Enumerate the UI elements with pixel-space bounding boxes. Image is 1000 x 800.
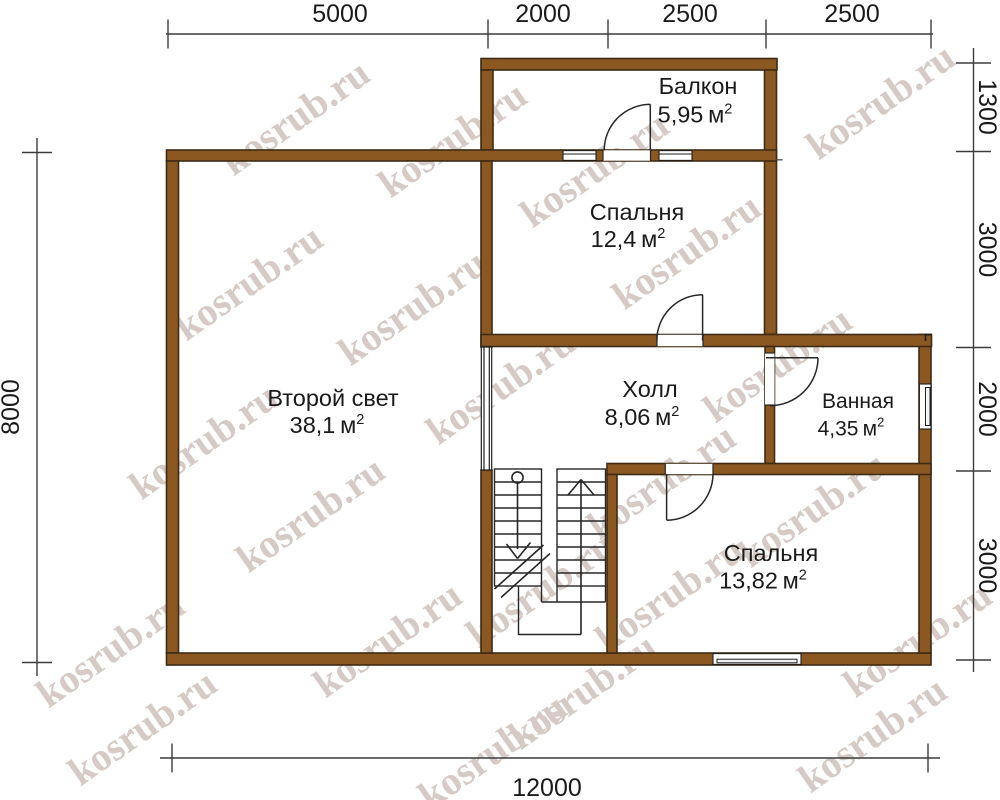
svg-text:38,1 м2: 38,1 м2 bbox=[290, 412, 365, 438]
svg-text:Холл: Холл bbox=[622, 376, 677, 402]
svg-text:2500: 2500 bbox=[824, 0, 880, 28]
svg-text:2500: 2500 bbox=[662, 0, 718, 28]
svg-text:3000: 3000 bbox=[973, 222, 1000, 278]
svg-text:3000: 3000 bbox=[973, 538, 1000, 594]
svg-text:Второй свет: Второй свет bbox=[267, 385, 399, 411]
svg-text:12000: 12000 bbox=[512, 774, 582, 800]
svg-text:8000: 8000 bbox=[0, 379, 25, 435]
svg-text:13,82 м2: 13,82 м2 bbox=[719, 568, 807, 594]
svg-text:Спальня: Спальня bbox=[724, 540, 818, 566]
svg-text:2000: 2000 bbox=[515, 0, 571, 28]
svg-text:2000: 2000 bbox=[973, 381, 1000, 437]
svg-text:Ванная: Ванная bbox=[822, 390, 894, 413]
svg-text:8,06 м2: 8,06 м2 bbox=[605, 404, 680, 430]
svg-text:4,35 м2: 4,35 м2 bbox=[818, 415, 885, 441]
svg-text:Балкон: Балкон bbox=[659, 73, 738, 99]
svg-text:12,4 м2: 12,4 м2 bbox=[591, 226, 666, 252]
svg-text:Спальня: Спальня bbox=[590, 199, 684, 225]
svg-text:1300: 1300 bbox=[973, 79, 1000, 135]
svg-text:5,95 м2: 5,95 м2 bbox=[658, 102, 733, 128]
svg-text:5000: 5000 bbox=[312, 0, 368, 28]
